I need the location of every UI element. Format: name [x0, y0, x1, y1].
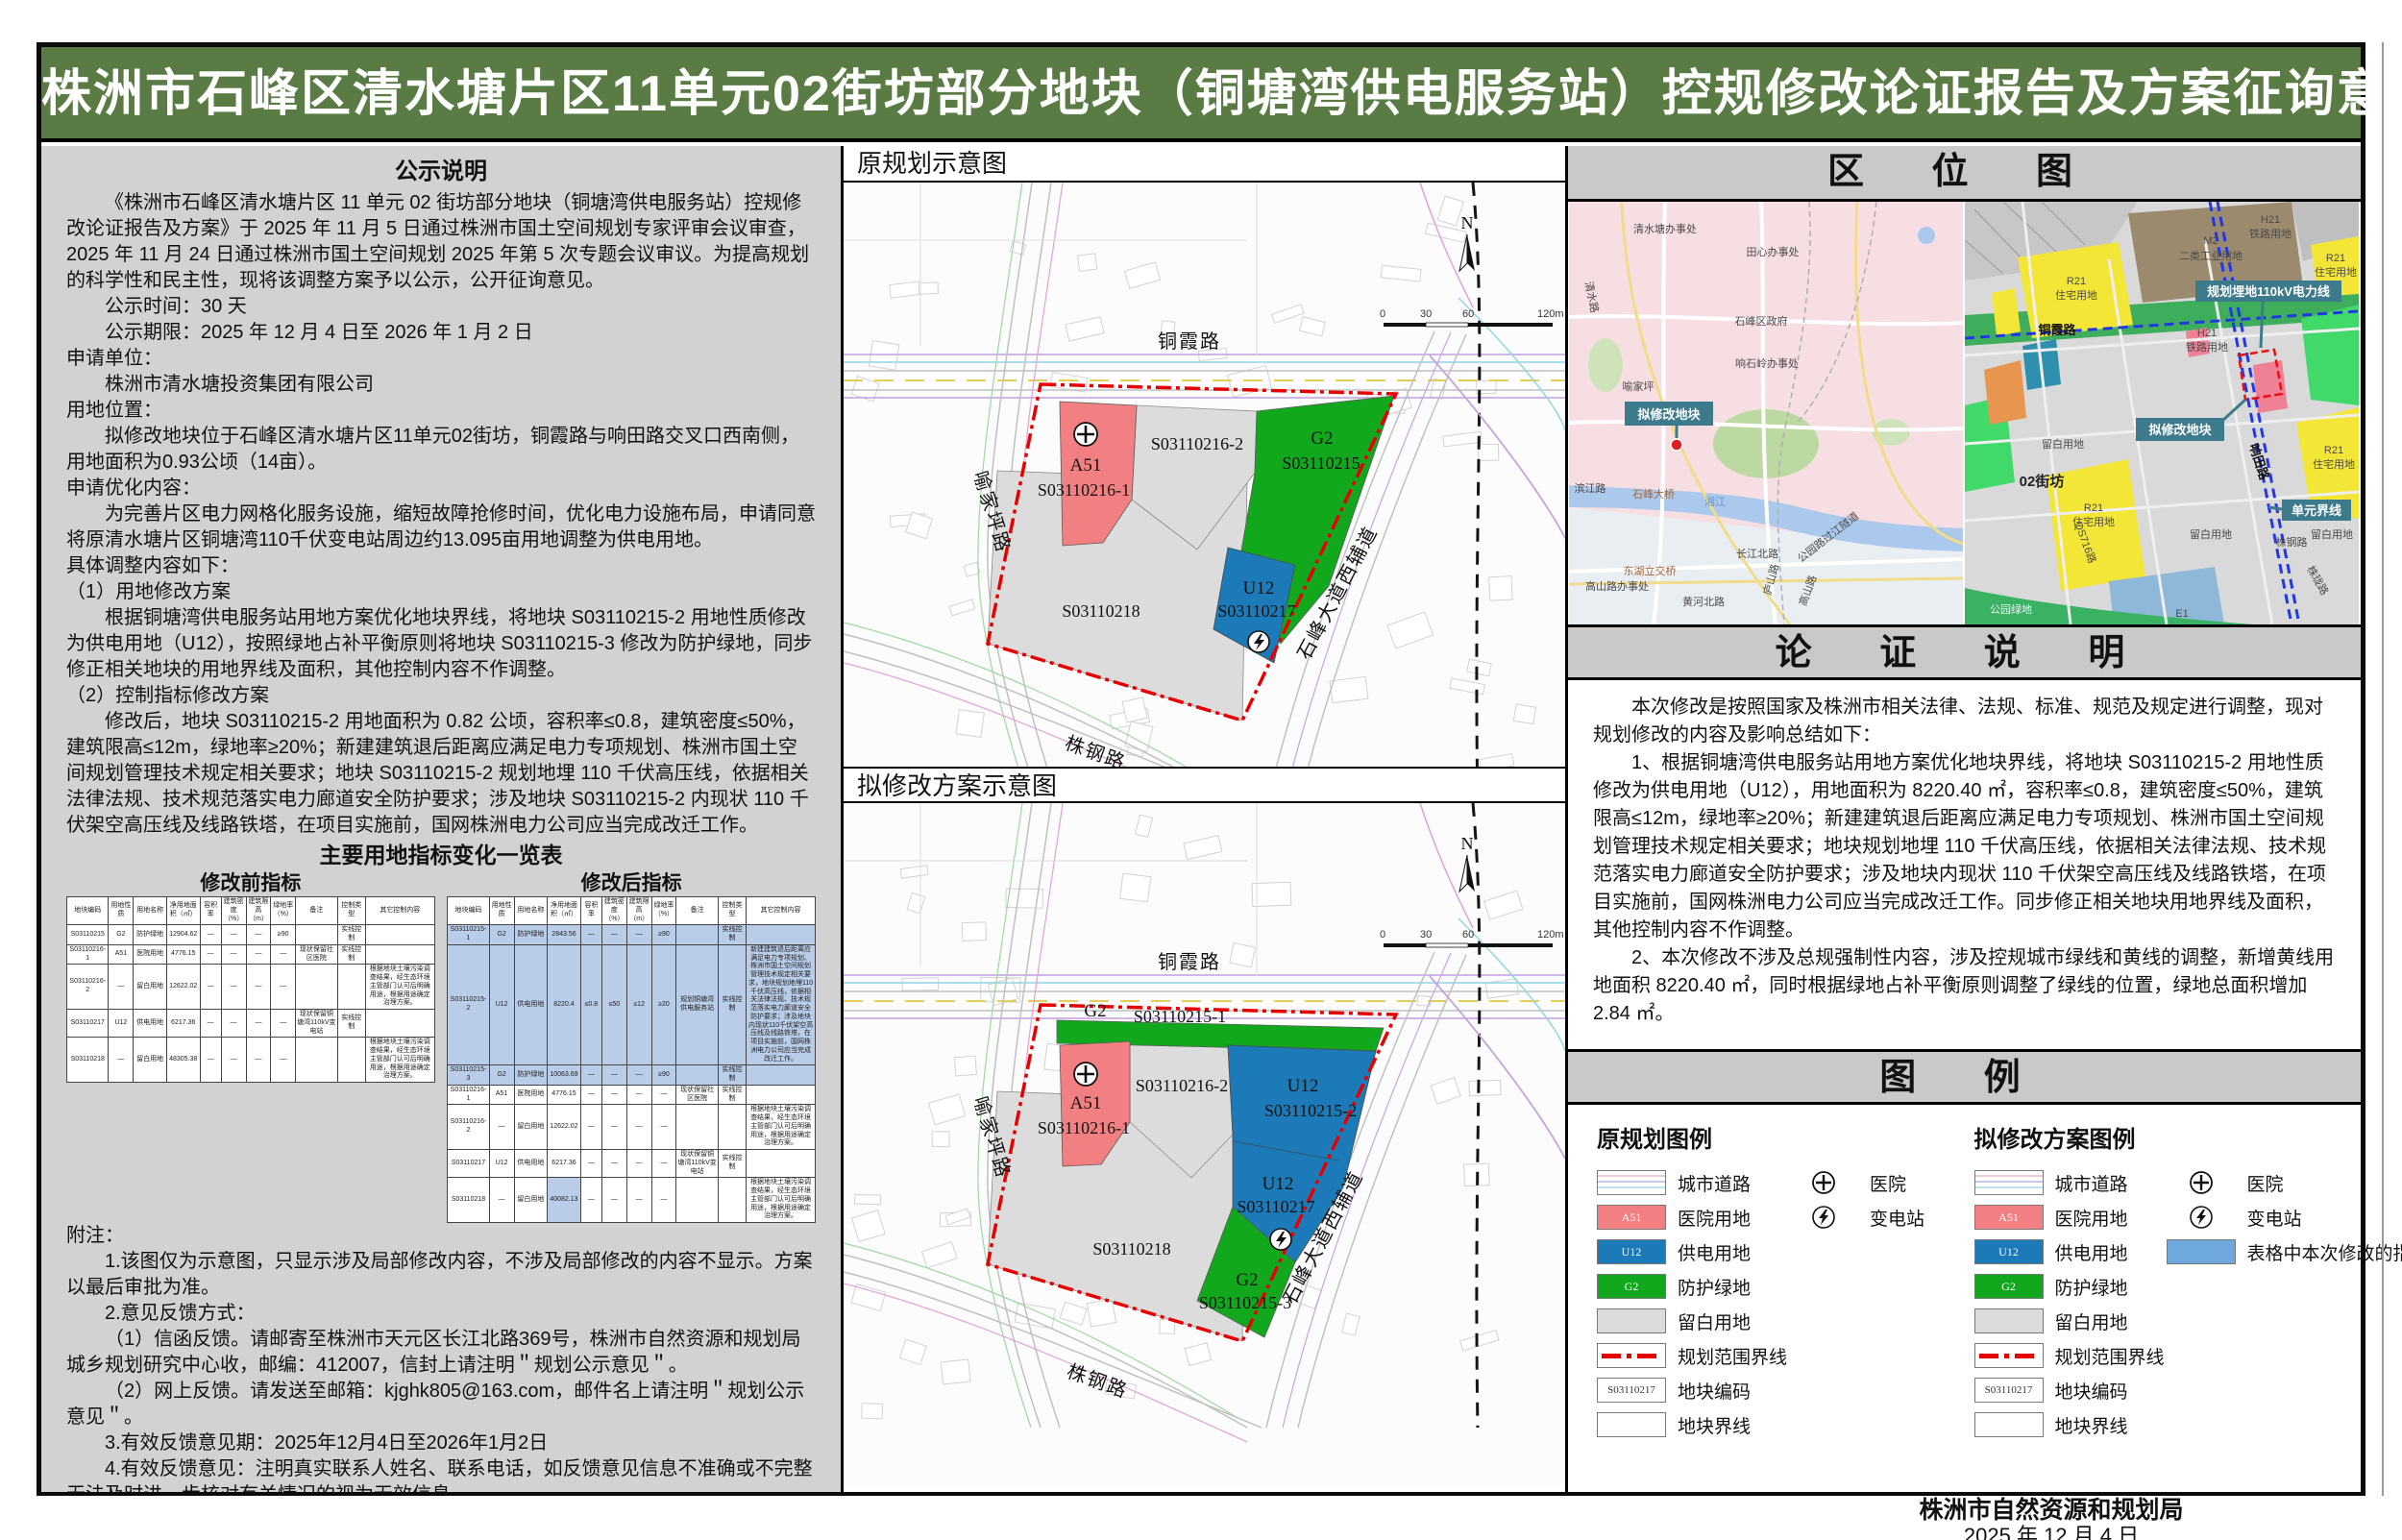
- table-cell: —: [271, 965, 296, 1010]
- table-cell: 留白用地: [134, 965, 167, 1010]
- legend-swatch-road: [1597, 1170, 1666, 1195]
- table-cell: 48305.38: [166, 1038, 200, 1083]
- legend-label: 医院用地: [1678, 1205, 1751, 1231]
- location-value: 拟修改地块位于石峰区清水塘片区11单元02街坊，铜霞路与响田路交叉口西南侧，用地…: [66, 424, 816, 476]
- table-row: S03110216-1A51医院用地4776.15————现状保留社区医院实线控…: [67, 944, 435, 965]
- hospital-icon: [1074, 1063, 1097, 1086]
- table-cell: —: [271, 1038, 296, 1083]
- table-cell: 根据地块土壤污染调查结果，经生态环境主管部门认可后明确用途，根据用途确定治理方案…: [747, 1105, 816, 1150]
- table-cell: 实线控制: [718, 1065, 746, 1086]
- table-row: S03110216-1A51医院用地4776.15————现状保留社区医院实线控…: [448, 1085, 816, 1105]
- table-cell: —: [580, 925, 601, 945]
- table-cell: 现状保留社区医院: [676, 1085, 718, 1105]
- map-label: H21: [2261, 214, 2280, 226]
- table-cell: S03110217: [67, 1010, 109, 1038]
- column-header: 控制类型: [337, 897, 365, 925]
- legend-swatch-codebox: S03110217: [1597, 1378, 1666, 1403]
- table-cell: —: [602, 1085, 627, 1105]
- map-label: 留白用地: [2311, 527, 2353, 541]
- legend-swatch-gray: [1597, 1308, 1666, 1333]
- table-cell: 10063.69: [548, 1065, 581, 1086]
- svg-text:N: N: [1461, 834, 1474, 853]
- notes-label: 附注：: [66, 1223, 816, 1249]
- legend-label: 医院: [2247, 1170, 2284, 1196]
- table-cell: 供电用地: [514, 944, 548, 1065]
- map-label: 高山路办事处: [1585, 579, 1649, 593]
- map-label: 铁路用地: [2186, 341, 2228, 354]
- table-row: S03110216-2—留白用地12622.02————根据地块土壤污染调查结果…: [67, 965, 435, 1010]
- table-cell: —: [200, 1038, 221, 1083]
- legend-label: 防护绿地: [2055, 1274, 2128, 1300]
- table-cell: —: [489, 1178, 514, 1223]
- table-cell: U12: [109, 1010, 134, 1038]
- legend-item: 留白用地: [1974, 1304, 2167, 1338]
- legend-item: 城市道路: [1974, 1165, 2167, 1200]
- table-cell: S03110216-1: [67, 944, 109, 965]
- legend-group-heading: 拟修改方案图例: [1974, 1120, 2352, 1154]
- zone-label: S03110215-2: [1264, 1101, 1357, 1120]
- note-item: 4.有效反馈意见：注明真实联系人姓名、联系电话，如反馈意见信息不准确或不完整无法…: [66, 1456, 816, 1492]
- table-cell: S03110218: [448, 1178, 489, 1223]
- detail-label: 具体调整内容如下：: [66, 553, 816, 579]
- after-indicator-table: 地块编码用地性质用地名称净用地面积（㎡）容积率建筑密度（%）建筑限高（m）绿地率…: [447, 896, 816, 1223]
- note-item: 3.有效反馈意见期：2025年12月4日至2026年1月2日: [66, 1430, 816, 1456]
- map-label: 黄河北路: [1682, 595, 1725, 608]
- before-table-label: 修改前指标: [66, 871, 435, 896]
- hospital-icon: [1789, 1169, 1858, 1196]
- poster-frame: 株洲市石峰区清水塘片区11单元02街坊部分地块（铜塘湾供电服务站）控规修改论证报…: [37, 42, 2365, 1496]
- footer: 株洲市自然资源和规划局 2025 年 12 月 4 日: [1777, 1498, 2325, 1540]
- table-cell: 医院用地: [134, 944, 167, 965]
- table-cell: [747, 1085, 816, 1105]
- table-cell: —: [246, 1010, 271, 1038]
- legend-swatch-gray: [1974, 1308, 2044, 1333]
- table-cell: 实线控制: [337, 925, 365, 945]
- column-header: 建筑限高（m）: [246, 897, 271, 925]
- legend-label: 医院: [1870, 1170, 1906, 1196]
- planning-notice-poster: 株洲市石峰区清水塘片区11单元02街坊部分地块（铜塘湾供电服务站）控规修改论证报…: [0, 0, 2402, 1540]
- table-cell: [718, 1105, 746, 1150]
- map-label: 留白用地: [2190, 527, 2232, 541]
- map-label: 长江北路: [1736, 548, 1778, 560]
- zone-label: A51: [1070, 1093, 1102, 1113]
- map-label: 清水塘办事处: [1633, 222, 1697, 235]
- legend-label: 地块编码: [1678, 1378, 1751, 1404]
- note-item: （2）网上反馈。请发送至邮箱：kjghk805@163.com，邮件名上请注明＂…: [66, 1379, 816, 1430]
- table-cell: —: [626, 1065, 651, 1086]
- table-cell: —: [200, 944, 221, 965]
- table-cell: —: [109, 1038, 134, 1083]
- building-outline: [941, 1359, 970, 1384]
- legend-label: 地块编码: [2055, 1378, 2128, 1404]
- legend-item: 地块界线: [1597, 1407, 1789, 1442]
- city-location-map: 拟修改地块 清水塘办事处田心办事处石峰区政府响石岭办事处喻家坪清水路滨江路石峰大…: [1568, 202, 1964, 624]
- legend-swatch-whitebox: [1597, 1412, 1666, 1437]
- table-cell: U12: [489, 1150, 514, 1178]
- table-cell: S03110215-2: [448, 944, 489, 1065]
- column-header: 绿地率（%）: [271, 897, 296, 925]
- legend-group-heading: 原规划图例: [1597, 1120, 1974, 1154]
- zone-label: S03110217: [1237, 1197, 1314, 1216]
- building-outline: [1230, 942, 1256, 966]
- map-label: 02街坊: [2020, 473, 2065, 490]
- svg-text:30: 30: [1420, 308, 1432, 320]
- legend-swatch-green: G2: [1597, 1274, 1666, 1299]
- table-row: S03110217U12供电用地6217.36————现状保留铜塘湾110kV变…: [67, 1010, 435, 1038]
- map2-title: 拟修改方案示意图: [844, 767, 1565, 803]
- table-row: S03110216-2—留白用地12622.02————根据地块土壤污染调查结果…: [448, 1105, 816, 1150]
- table-cell: —: [602, 1150, 627, 1178]
- table-cell: —: [626, 1105, 651, 1150]
- table-cell: S03110215-3: [448, 1065, 489, 1086]
- table-cell: S03110215: [67, 925, 109, 945]
- zone-label: U12: [1243, 578, 1275, 599]
- legend-item: A51医院用地: [1597, 1200, 1789, 1234]
- notice-panel: 公示说明 《株洲市石峰区清水塘片区 11 单元 02 街坊部分地块（铜塘湾供电服…: [41, 146, 844, 1492]
- road-label-tongxia: 铜霞路: [1158, 951, 1221, 973]
- table-cell: 现状保留社区医院: [296, 944, 337, 965]
- table-cell: [747, 1150, 816, 1178]
- location-maps: 拟修改地块 清水塘办事处田心办事处石峰区政府响石岭办事处喻家坪清水路滨江路石峰大…: [1568, 202, 2361, 624]
- table-cell: G2: [489, 925, 514, 945]
- column-header: 建筑密度（%）: [602, 897, 627, 925]
- table-cell: —: [246, 965, 271, 1010]
- map-label: 株钢路: [2276, 535, 2308, 549]
- right-panel: 区 位 图: [1568, 146, 2361, 1492]
- table-row: S03110218—留白用地48305.38————根据地块土壤污染调查结果，经…: [67, 1038, 435, 1083]
- table-cell: —: [651, 1105, 676, 1150]
- legend-swatch-pink: A51: [1974, 1205, 2044, 1230]
- map-label: 滨江路: [1575, 481, 1606, 495]
- before-indicator-table: 地块编码用地性质用地名称净用地面积（㎡）容积率建筑密度（%）建筑限高（m）绿地率…: [66, 896, 435, 1083]
- argument-text: 本次修改是按照国家及株洲市相关法律、法规、标准、规范及规定进行调整，现对规划修改…: [1568, 680, 2361, 1049]
- building-outline: [962, 922, 986, 941]
- column-header: 备注: [296, 897, 337, 925]
- legend-label: 变电站: [1870, 1205, 1924, 1231]
- table-cell: —: [221, 944, 246, 965]
- table-cell: —: [221, 965, 246, 1010]
- building-outline: [1469, 1080, 1501, 1095]
- after-table-block: 修改后指标 地块编码用地性质用地名称净用地面积（㎡）容积率建筑密度（%）建筑限高…: [447, 871, 816, 1223]
- column-header: 净用地面积（㎡）: [166, 897, 200, 925]
- legend-swatch-codebox: S03110217: [1974, 1378, 2044, 1403]
- table-cell: [337, 965, 365, 1010]
- table-cell: ≥90: [651, 1065, 676, 1086]
- page-edge-line: [2382, 42, 2384, 1496]
- table-cell: S03110216-1: [448, 1085, 489, 1105]
- map1-title: 原规划示意图: [844, 146, 1565, 183]
- argument-paragraph: 1、根据铜塘湾供电服务站用地方案优化地块界线，将地块 S03110215-2 用…: [1593, 749, 2336, 944]
- svg-text:30: 30: [1420, 929, 1432, 941]
- table-cell: S03110216-2: [67, 965, 109, 1010]
- hospital-icon: [2167, 1169, 2236, 1196]
- column-header: 其它控制内容: [365, 897, 434, 925]
- zone-label: S03110218: [1092, 1239, 1170, 1259]
- legend-item: 变电站: [2167, 1200, 2349, 1234]
- table-cell: —: [626, 1085, 651, 1105]
- zone-label: S03110216-1: [1038, 1118, 1130, 1137]
- legend-item: U12供电用地: [1974, 1234, 2167, 1269]
- power-icon: [2167, 1204, 2236, 1231]
- table-cell: 6217.36: [166, 1010, 200, 1038]
- legend-item: 表格中本次修改的指标栏: [2167, 1234, 2349, 1269]
- table-cell: A51: [109, 944, 134, 965]
- building-outline: [1087, 1299, 1115, 1327]
- table-cell: 实线控制: [718, 944, 746, 1065]
- building-outline: [1120, 873, 1151, 902]
- table-cell: —: [200, 1010, 221, 1038]
- column-header: 用地名称: [134, 897, 167, 925]
- table-cell: —: [200, 965, 221, 1010]
- applicant-label: 申请单位：: [66, 346, 816, 372]
- table-cell: —: [580, 1150, 601, 1178]
- table-cell: [718, 1178, 746, 1223]
- map-label: 住宅用地: [2055, 288, 2097, 302]
- table-cell: —: [221, 1010, 246, 1038]
- zone-label: S03110215-1: [1134, 1007, 1226, 1026]
- table-cell: 实线控制: [337, 944, 365, 965]
- table-cell: [747, 1065, 816, 1086]
- power-icon: [1789, 1204, 1858, 1231]
- table-cell: ≤12: [626, 944, 651, 1065]
- after-table-label: 修改后指标: [447, 871, 816, 896]
- legend-swatch-whitebox: [1974, 1412, 2044, 1437]
- table-cell: ≥90: [651, 925, 676, 945]
- legend-swatch-hlblue: [2167, 1239, 2236, 1264]
- legend-item: U12供电用地: [1597, 1234, 1789, 1269]
- map-label: M2: [2203, 235, 2218, 247]
- issue-date: 2025 年 12 月 4 日: [1777, 1525, 2325, 1540]
- table-cell: —: [246, 944, 271, 965]
- table-cell: [747, 925, 816, 945]
- map-label: 铁路用地: [2249, 228, 2292, 240]
- legend-swatch-blue: U12: [1597, 1239, 1666, 1264]
- table-cell: —: [580, 1178, 601, 1223]
- hospital-icon: [1074, 423, 1097, 446]
- column-header: 净用地面积（㎡）: [548, 897, 581, 925]
- argument-paragraph: 2、本次修改不涉及总规强制性内容，涉及控规城市绿线和黄线的调整，新增黄线用地面积…: [1593, 944, 2336, 1028]
- legend-label: 防护绿地: [1678, 1274, 1751, 1300]
- before-table-block: 修改前指标 地块编码用地性质用地名称净用地面积（㎡）容积率建筑密度（%）建筑限高…: [66, 871, 435, 1223]
- legend-item: 城市道路: [1597, 1165, 1789, 1200]
- building-outline: [1330, 676, 1368, 702]
- legend-item: S03110217地块编码: [1597, 1373, 1789, 1407]
- modify-callout-text: 拟修改地块: [1637, 407, 1701, 422]
- zone-label: G2: [1084, 1001, 1106, 1021]
- zoning-location-map: 规划埋地110kV电力线 拟修改地块 单元界线 M2二类工业用地H21铁路用地R…: [1964, 202, 2360, 624]
- legend-swatch-reddash: [1974, 1343, 2044, 1368]
- table-cell: [676, 925, 718, 945]
- table-cell: G2: [489, 1065, 514, 1086]
- legend-title: 图 例: [1568, 1049, 2361, 1105]
- map-label: R21: [2067, 276, 2086, 287]
- table-row: S03110215-1G2防护绿地2843.56———≥90实线控制: [448, 925, 816, 945]
- table-cell: —: [651, 1178, 676, 1223]
- zone-label: S03110217: [1217, 601, 1295, 621]
- modify-callout-text: 拟修改地块: [2148, 423, 2212, 437]
- argument-paragraph: 本次修改是按照国家及株洲市相关法律、法规、标准、规范及规定进行调整，现对规划修改…: [1593, 694, 2336, 749]
- building-outline: [919, 282, 938, 294]
- building-outline: [902, 978, 938, 990]
- table-cell: —: [602, 1065, 627, 1086]
- notes-list: 1.该图仅为示意图，只显示涉及局部修改内容，不涉及局部修改的内容不显示。方案以最…: [66, 1249, 816, 1492]
- table-cell: —: [271, 1010, 296, 1038]
- table-cell: 根据地块土壤污染调查结果，经生态环境主管部门认可后明确用途，根据用途确定治理方案…: [365, 1038, 434, 1083]
- map-label: H21: [2197, 328, 2217, 339]
- legend-original-group: 原规划图例 城市道路A51医院用地U12供电用地G2防护绿地留白用地规划范围界线…: [1597, 1120, 1974, 1487]
- table-cell: 供电用地: [134, 1010, 167, 1038]
- table-cell: G2: [109, 925, 134, 945]
- table-cell: 4776.15: [166, 944, 200, 965]
- table-cell: [337, 1038, 365, 1083]
- table-cell: 4776.15: [548, 1085, 581, 1105]
- legend-item: 地块界线: [1974, 1407, 2167, 1442]
- substation-icon: [1248, 631, 1269, 652]
- table-cell: S03110216-2: [448, 1105, 489, 1150]
- legend-label: 城市道路: [1678, 1170, 1751, 1196]
- legend-swatch-green: G2: [1974, 1274, 2044, 1299]
- legend-label: 城市道路: [2055, 1170, 2128, 1196]
- item2-label: （2）控制指标修改方案: [66, 683, 816, 709]
- optimize-label: 申请优化内容：: [66, 476, 816, 501]
- building-outline: [862, 1404, 883, 1419]
- table-cell: 实线控制: [718, 925, 746, 945]
- notice-period: 公示期限：2025 年 12 月 4 日至 2026 年 1 月 2 日: [66, 320, 816, 346]
- zone-label: S03110216-1: [1038, 480, 1130, 500]
- table-cell: [676, 1178, 718, 1223]
- table-cell: —: [580, 1085, 601, 1105]
- column-header: 建筑限高（m）: [626, 897, 651, 925]
- legend-label: 医院用地: [2055, 1205, 2128, 1231]
- table-cell: —: [626, 1150, 651, 1178]
- table-cell: —: [626, 1178, 651, 1223]
- table-row: S03110218—留白用地40082.13————根据地块土壤污染调查结果，经…: [448, 1178, 816, 1223]
- note-item: （1）信函反馈。请邮寄至株洲市天元区长江北路369号，株洲市自然资源和规划局城乡…: [66, 1327, 816, 1379]
- building-outline: [1513, 704, 1535, 723]
- building-outline: [955, 1056, 977, 1076]
- table-cell: S03110217: [448, 1150, 489, 1178]
- table-cell: 根据地块土壤污染调查结果，经生态环境主管部门认可后明确用途，根据用途确定治理方案…: [747, 1178, 816, 1223]
- unit-boundary-callout-text: 单元界线: [2292, 503, 2341, 518]
- column-header: 备注: [676, 897, 718, 925]
- legend-item: G2防护绿地: [1597, 1269, 1789, 1304]
- table-cell: 医院用地: [514, 1085, 548, 1105]
- table-cell: ≤0.8: [580, 944, 601, 1065]
- table-cell: 留白用地: [134, 1038, 167, 1083]
- table-cell: 现状保留铜塘湾110kV变电站: [676, 1150, 718, 1178]
- legend-label: 地块界线: [1678, 1412, 1751, 1438]
- legend-label: 规划范围界线: [1678, 1343, 1787, 1369]
- applicant-value: 株洲市清水塘投资集团有限公司: [66, 372, 816, 398]
- legend-item: 变电站: [1789, 1200, 1972, 1234]
- table-cell: —: [271, 944, 296, 965]
- legend-label: 留白用地: [2055, 1308, 2128, 1334]
- plan-maps-panel: 原规划示意图: [844, 146, 1568, 1492]
- legend-item: 医院: [1789, 1165, 1972, 1200]
- legend-label: 规划范围界线: [2055, 1343, 2165, 1369]
- table-cell: 2843.56: [548, 925, 581, 945]
- column-header: 建筑密度（%）: [221, 897, 246, 925]
- table-cell: S03110215-1: [448, 925, 489, 945]
- orange-parcel: [1984, 360, 2026, 425]
- legend-label: 变电站: [2247, 1205, 2302, 1231]
- notice-time: 公示时间：30 天: [66, 294, 816, 320]
- optimize-value: 为完善片区电力网格化服务设施，缩短故障抢修时间，优化电力设施布局，申请同意将原清…: [66, 501, 816, 553]
- notice-paragraph: 《株洲市石峰区清水塘片区 11 单元 02 街坊部分地块（铜塘湾供电服务站）控规…: [66, 190, 816, 294]
- legend-swatch-road: [1974, 1170, 2044, 1195]
- location-label: 用地位置：: [66, 398, 816, 424]
- table-row: S03110217U12供电用地6217.36————现状保留铜塘湾110kV变…: [448, 1150, 816, 1178]
- table-cell: [296, 965, 337, 1010]
- table-cell: —: [602, 1105, 627, 1150]
- issuing-authority: 株洲市自然资源和规划局: [1777, 1498, 2325, 1523]
- table-cell: —: [200, 925, 221, 945]
- legend-item: A51医院用地: [1974, 1200, 2167, 1234]
- table-cell: [365, 944, 434, 965]
- site-marker-dot: [1671, 439, 1682, 451]
- building-outline: [956, 710, 984, 738]
- map-label: 田心办事处: [1747, 246, 1800, 258]
- legend-swatch-blue: U12: [1974, 1239, 2044, 1264]
- table-cell: 8220.4: [548, 944, 581, 1065]
- map-label: 二类工业用地: [2179, 249, 2243, 262]
- table-cell: ≤50: [602, 944, 627, 1065]
- table-cell: —: [651, 1085, 676, 1105]
- map-label: 湘江: [1704, 495, 1726, 508]
- building-outline: [1489, 576, 1513, 601]
- building-outline: [1122, 697, 1147, 722]
- table-cell: —: [246, 1038, 271, 1083]
- table-cell: 6217.36: [548, 1150, 581, 1178]
- table-cell: 防护绿地: [514, 925, 548, 945]
- item1-text: 根据铜塘湾供电服务站用地方案优化地块界线，将地块 S03110215-2 用地性…: [66, 605, 816, 683]
- column-header: 绿地率（%）: [651, 897, 676, 925]
- legend-label: 供电用地: [1678, 1239, 1751, 1265]
- table-row: S03110215-3G2防护绿地10063.69———≥90实线控制: [448, 1065, 816, 1086]
- legend-label: 地块界线: [2055, 1412, 2128, 1438]
- table-cell: —: [246, 925, 271, 945]
- table-cell: 12622.02: [548, 1105, 581, 1150]
- table-cell: 实线控制: [337, 1010, 365, 1038]
- table-cell: 12622.02: [166, 965, 200, 1010]
- table-cell: 新建建筑退后距离应满足电力专项规划、株洲市国土空间规划管理技术规定相关要求，地块…: [747, 944, 816, 1065]
- table-cell: 实线控制: [718, 1085, 746, 1105]
- table-title: 主要用地指标变化一览表: [66, 841, 816, 869]
- zone-label: S03110216-2: [1151, 434, 1243, 453]
- column-header: 容积率: [200, 897, 221, 925]
- table-cell: 12904.62: [166, 925, 200, 945]
- zone-label: U12: [1262, 1174, 1294, 1194]
- legend-label: 供电用地: [2055, 1239, 2128, 1265]
- table-cell: [676, 1105, 718, 1150]
- table-cell: 现状保留铜塘湾110kV变电站: [296, 1010, 337, 1038]
- table-cell: [365, 1010, 434, 1038]
- legend-label: 留白用地: [1678, 1308, 1751, 1334]
- table-cell: 根据地块土壤污染调查结果，经生态环境主管部门认可后明确用途，根据用途确定治理方案…: [365, 965, 434, 1010]
- table-cell: —: [626, 925, 651, 945]
- table-cell: 实线控制: [718, 1150, 746, 1178]
- note-item: 1.该图仅为示意图，只显示涉及局部修改内容，不涉及局部修改的内容不显示。方案以最…: [66, 1249, 816, 1301]
- indicator-tables: 修改前指标 地块编码用地性质用地名称净用地面积（㎡）容积率建筑密度（%）建筑限高…: [66, 871, 816, 1223]
- table-cell: 规划铜塘湾供电服务站: [676, 944, 718, 1065]
- table-cell: ≥90: [271, 925, 296, 945]
- table-row: S03110215G2防护绿地12904.62———≥90实线控制: [67, 925, 435, 945]
- map-label: R21: [2084, 502, 2103, 514]
- location-map-title: 区 位 图: [1568, 146, 2361, 202]
- table-cell: [296, 925, 337, 945]
- table-cell: 40082.13: [548, 1178, 581, 1223]
- table-cell: [365, 925, 434, 945]
